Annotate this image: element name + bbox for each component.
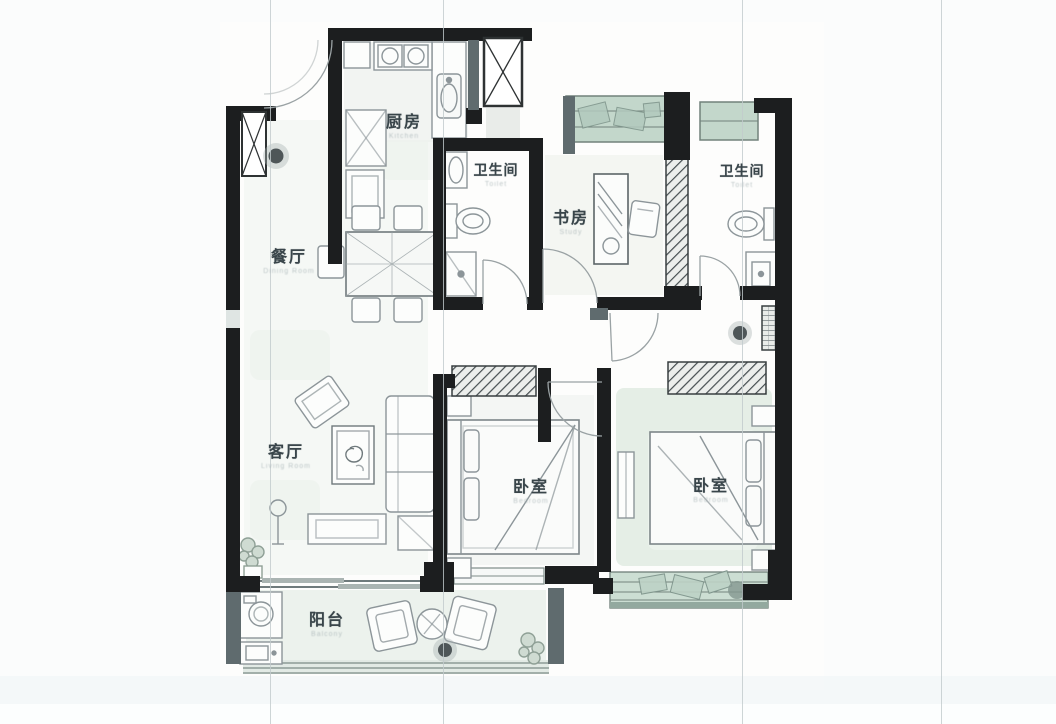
side-table	[398, 516, 434, 550]
bed-left	[447, 396, 579, 578]
wardrobe-bedroom-left	[452, 366, 536, 396]
shaft-lower-panel	[486, 108, 520, 140]
floorplan-photo: 厨房 Kitchen 卫生间 Toilet 书房 Study 卫生间 Toile…	[0, 0, 1056, 724]
washbasin-left-icon	[445, 152, 467, 188]
stove-icon	[374, 42, 432, 70]
tv-stand-bedroom-right	[618, 452, 634, 518]
sofa	[386, 396, 434, 512]
balcony-round-table	[417, 609, 447, 639]
shower-left-icon	[446, 252, 476, 296]
pendant-light-icon	[433, 638, 457, 662]
pendant-light-icon	[263, 143, 289, 169]
left-wall-window-slit	[226, 310, 240, 328]
tv-bench	[308, 514, 386, 544]
balcony-cabinet	[240, 642, 282, 664]
floorplan-drawing	[0, 0, 1056, 724]
balcony-rail-window	[243, 660, 549, 674]
entry-shaft-icon	[242, 112, 266, 176]
kitchen-shaft-icon	[484, 38, 522, 106]
coffee-table-rug	[332, 426, 374, 484]
kitchen-sink-icon	[437, 74, 461, 118]
desk-chair	[628, 200, 660, 238]
fridge-icon	[346, 110, 386, 166]
study-bay-window	[566, 96, 666, 142]
balcony-chair-1	[366, 600, 418, 652]
bookcase-desk	[594, 174, 628, 264]
duct-column	[666, 158, 688, 288]
wardrobe-bedroom-right	[668, 362, 766, 394]
bathroom-right-window	[700, 102, 758, 140]
pendant-light-icon	[728, 321, 752, 345]
washing-machine-icon	[240, 592, 282, 638]
